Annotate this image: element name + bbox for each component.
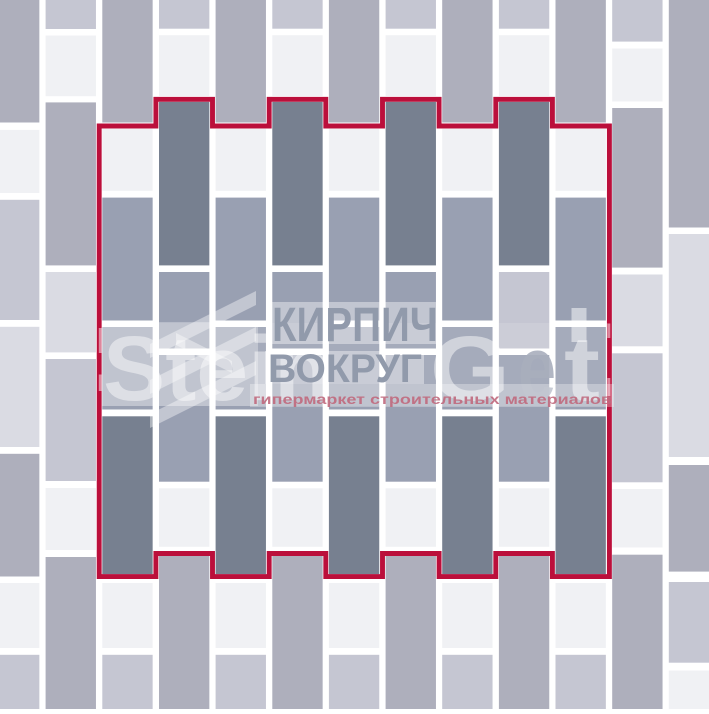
svg-text:КИРПИЧ: КИРПИЧ [272, 299, 438, 352]
svg-text:гипермаркет строительных матер: гипермаркет строительных материалов [253, 391, 613, 407]
